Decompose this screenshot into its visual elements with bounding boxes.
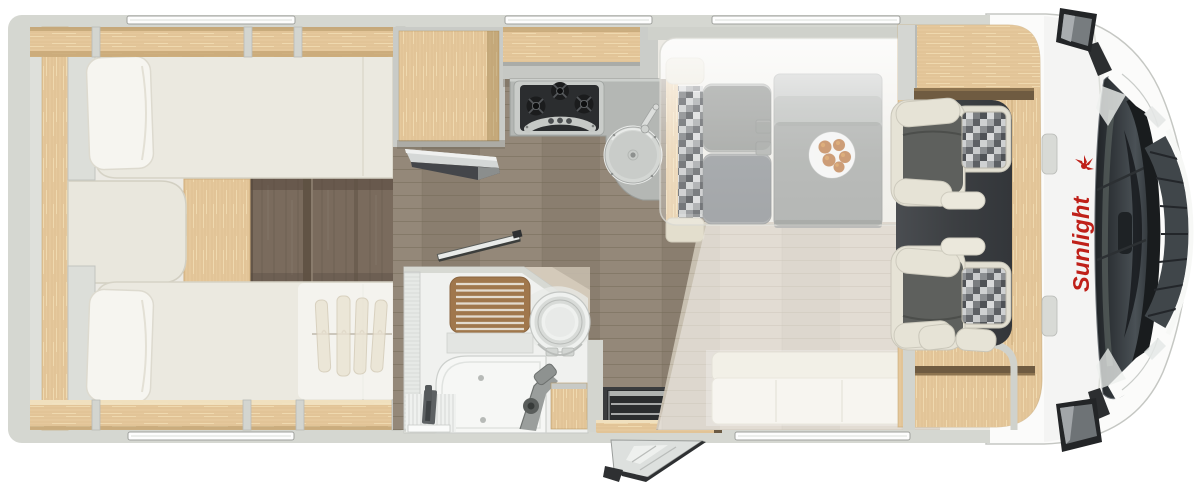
svg-text:Sunlight: Sunlight xyxy=(1068,195,1094,292)
